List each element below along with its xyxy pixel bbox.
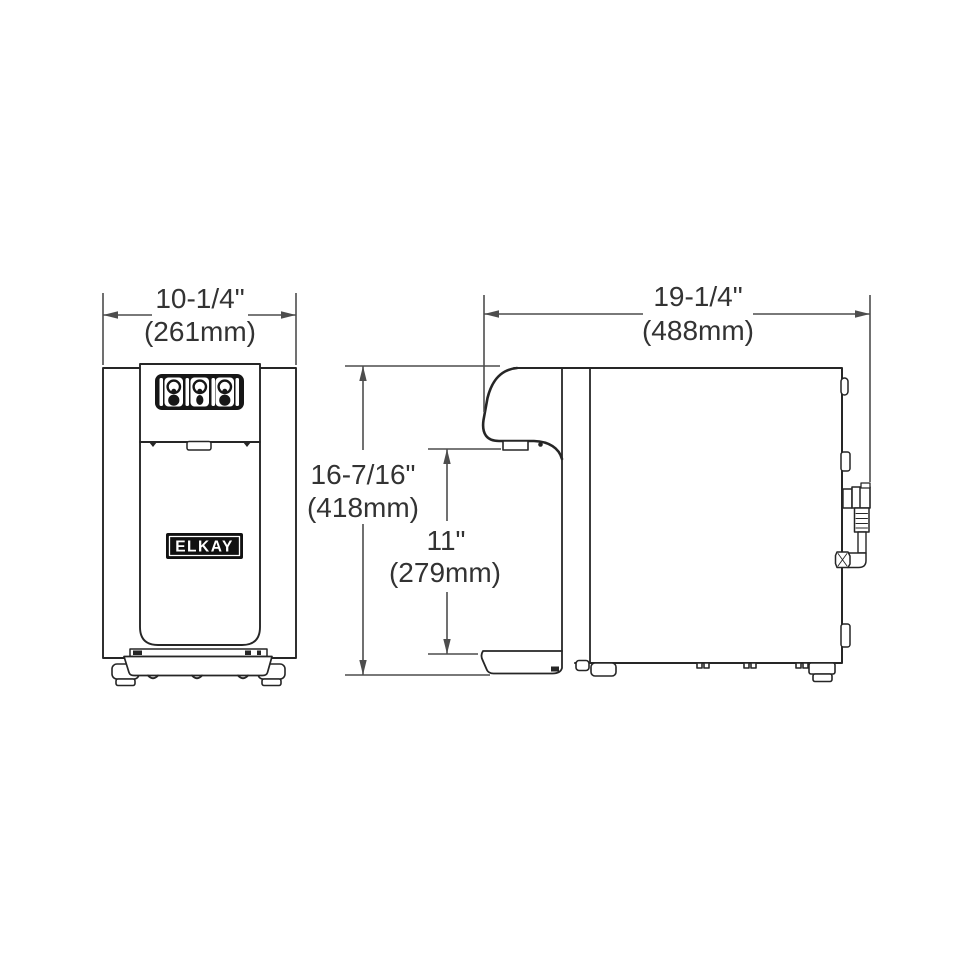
arrowhead	[359, 660, 366, 675]
dispense-button-center	[191, 378, 210, 407]
fitting-stem	[858, 532, 866, 553]
control-panel	[155, 374, 244, 410]
dispense-button-left	[165, 378, 184, 407]
button-pad-icon	[219, 395, 230, 406]
button-pad-icon	[168, 395, 179, 406]
button-dot-icon	[222, 389, 227, 394]
caster	[576, 661, 589, 671]
button-dot-icon	[197, 389, 202, 394]
spout-nozzle	[503, 441, 528, 450]
body-outline	[514, 368, 842, 663]
door-tab	[187, 442, 211, 451]
front-view: ELKAY	[103, 364, 296, 686]
fitting-body	[852, 487, 870, 508]
height-label-inches: 16-7/16"	[311, 459, 416, 490]
height-dimension: 16-7/16" (418mm)	[307, 366, 500, 675]
arrowhead	[103, 311, 118, 318]
side-view	[482, 368, 871, 682]
dimension-drawing: ELKAY	[0, 0, 970, 971]
width-dimension: 10-1/4" (261mm)	[103, 283, 296, 365]
rear-foot-base	[813, 674, 832, 682]
dispense-buttons	[165, 378, 235, 407]
logo-text: ELKAY	[175, 539, 234, 556]
depth-label-inches: 19-1/4"	[653, 281, 742, 312]
arrowhead	[281, 311, 296, 318]
tray-basin	[124, 657, 272, 676]
bottom-bump	[803, 663, 808, 668]
height-label-metric: (418mm)	[307, 492, 419, 523]
clearance-label-metric: (279mm)	[389, 557, 501, 588]
depth-label-metric: (488mm)	[642, 315, 754, 346]
drawing-sheet: ELKAY	[0, 0, 970, 971]
side-view-feet	[576, 661, 835, 682]
fitting-bracket	[843, 489, 852, 508]
bottom-bump	[697, 663, 702, 668]
elkay-logo: ELKAY	[166, 533, 243, 559]
panel-bracket-4	[236, 378, 240, 406]
drip-tray-side	[482, 651, 563, 674]
panel-bracket-3	[212, 378, 216, 406]
width-label-metric: (261mm)	[144, 316, 256, 347]
foot-right-base	[262, 679, 281, 686]
bottom-bump	[751, 663, 756, 668]
bottom-bump	[744, 663, 749, 668]
panel-bracket-1	[160, 378, 164, 406]
panel-bracket-2	[186, 378, 190, 406]
button-dot-icon	[171, 389, 176, 394]
depth-dimension: 19-1/4" (488mm)	[484, 281, 870, 482]
arrowhead	[484, 310, 499, 317]
foot-left-base	[116, 679, 135, 686]
arrowhead	[443, 449, 450, 464]
water-inlet-fitting	[836, 483, 871, 568]
dispense-button-right	[216, 378, 235, 407]
arrowhead	[855, 310, 870, 317]
arrowhead	[443, 639, 450, 654]
width-label-inches: 10-1/4"	[155, 283, 244, 314]
spout-sensor-dot	[538, 442, 543, 447]
bottom-bump	[796, 663, 801, 668]
drip-tray-front	[124, 649, 272, 678]
rear-foot	[809, 663, 835, 674]
arrowhead	[359, 366, 366, 381]
button-pad-icon	[196, 395, 203, 405]
clearance-label-inches: 11"	[426, 525, 465, 556]
front-foot	[591, 663, 616, 676]
bottom-bump	[704, 663, 709, 668]
